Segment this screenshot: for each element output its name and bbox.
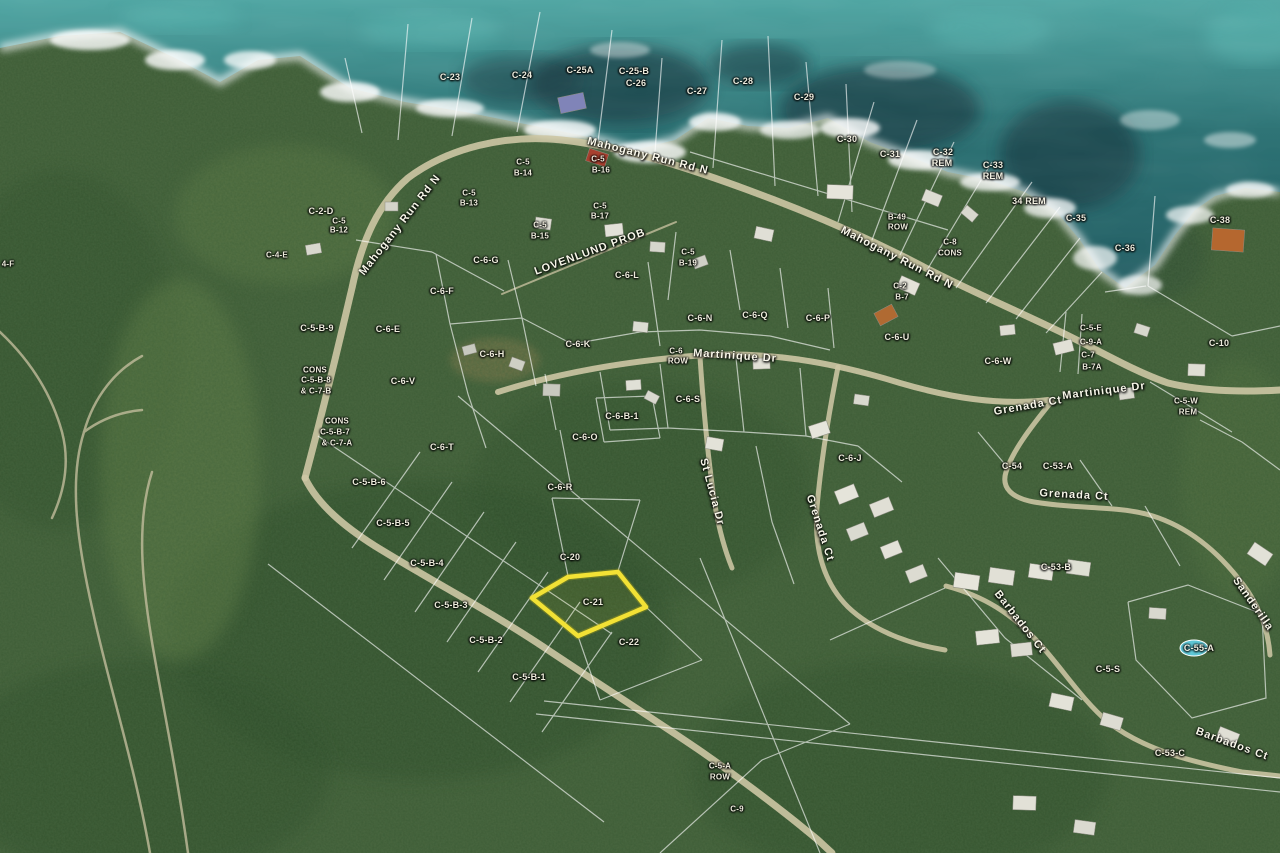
- map-canvas: [0, 0, 1280, 853]
- satellite-parcel-map[interactable]: C-23C-24C-25AC-25-BC-26C-27C-28C-29C-30C…: [0, 0, 1280, 853]
- swimming-pool: [1180, 640, 1208, 656]
